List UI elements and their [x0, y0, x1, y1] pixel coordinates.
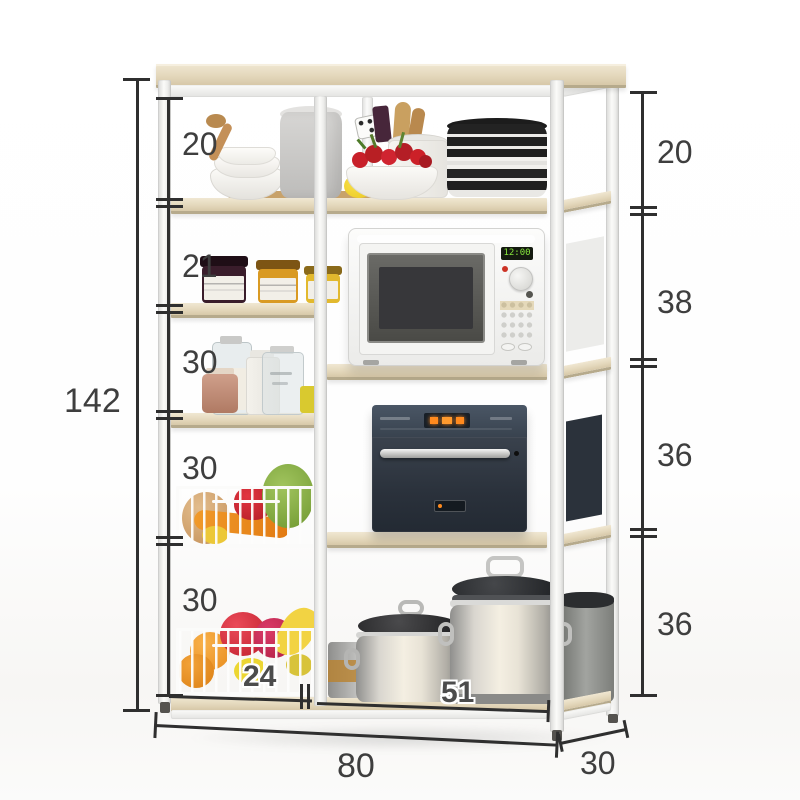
- glass-jar-doodle-mark: [272, 382, 288, 385]
- dim-line-right-segments: [641, 93, 644, 697]
- dim-tick: [630, 91, 657, 94]
- dim-label-left-segment: 20: [182, 128, 218, 160]
- dim-tick: [630, 694, 657, 697]
- medium-pot-handle-left: [344, 648, 360, 670]
- dim-label-depth: 30: [580, 747, 616, 779]
- dim-tick: [156, 97, 183, 100]
- dim-label-right-section-width: 51: [441, 676, 474, 710]
- jam-jar-amber-label: [260, 278, 296, 300]
- chili-heap: [352, 142, 432, 174]
- bowl-stack-top: [218, 147, 276, 165]
- oven-panel-marking: [380, 417, 410, 420]
- dim-separator: [630, 358, 657, 368]
- large-pot-lid-handle: [486, 556, 524, 578]
- dim-separator: [156, 410, 183, 420]
- oven: [372, 405, 527, 532]
- dim-tick: [123, 709, 150, 712]
- dim-separator: [156, 304, 183, 314]
- oven-panel-marking: [490, 417, 512, 420]
- shelf-right-2: [327, 364, 547, 380]
- dim-label-overall-height: 142: [64, 384, 121, 418]
- chili: [419, 155, 432, 168]
- dim-separator: [156, 198, 183, 208]
- oven-control-band: [372, 405, 527, 437]
- glass-canister-tall-clip: [220, 336, 242, 344]
- product-dimension-diagram: 12:00: [0, 0, 800, 800]
- oven-brand-dot: [438, 504, 442, 508]
- dim-label-left-segment: 30: [182, 346, 218, 378]
- grey-canister: [280, 112, 342, 198]
- shelf-1-full: [171, 198, 547, 214]
- rack-middle-post: [314, 96, 327, 706]
- oven-display-segment: [456, 417, 464, 424]
- glass-jar-doodle-mark: [270, 372, 292, 375]
- microwave-foot: [511, 360, 527, 365]
- dim-label-right-segment: 36: [657, 439, 693, 471]
- microwave-window-inner: [379, 267, 473, 329]
- microwave-display: 12:00: [501, 247, 533, 260]
- dim-label-right-segment: 38: [657, 286, 693, 318]
- dim-separator-vertical: [300, 684, 310, 709]
- dim-tick: [153, 712, 157, 738]
- shelf-left-3: [171, 413, 315, 428]
- dim-tick: [623, 720, 630, 738]
- oven-display-segment: [442, 417, 452, 424]
- oven-brand-badge: [434, 500, 466, 512]
- rack-front-right-leg: [550, 80, 564, 732]
- microwave-control-panel: 12:00: [499, 243, 535, 353]
- side-rail-shelf3: [563, 525, 611, 547]
- oven-side-panel: [566, 415, 602, 522]
- dim-label-right-segment: 20: [657, 136, 693, 168]
- microwave-top-trim: [357, 235, 535, 243]
- dim-separator: [630, 528, 657, 538]
- microwave-red-button: [502, 266, 508, 272]
- oven-panel-marking: [380, 428, 512, 430]
- dim-line-left-segments: [167, 99, 170, 697]
- microwave-foot: [363, 360, 379, 365]
- shelf-right-3: [327, 532, 547, 548]
- dim-tick: [123, 78, 150, 81]
- large-pot-handle-left: [438, 622, 454, 646]
- shelf-left-2: [171, 303, 315, 318]
- dark-spatula: [372, 105, 392, 142]
- vegetable-basket-scoop-rail: [212, 500, 280, 503]
- microwave-dial: [509, 267, 533, 291]
- microwave: 12:00: [348, 228, 545, 366]
- dim-label-left-segment: 30: [182, 584, 218, 616]
- oven-handle: [380, 449, 510, 458]
- microwave-side-panel: [566, 236, 604, 351]
- microwave-pill-button: [501, 343, 515, 351]
- dim-label-left-section-width: 24: [243, 660, 276, 694]
- vegetable-basket-wires: [176, 486, 316, 548]
- side-stock-pot: [558, 598, 614, 702]
- oven-display-segment: [430, 417, 438, 424]
- dim-label-right-segment: 36: [657, 608, 693, 640]
- dim-label-left-segment: 30: [182, 452, 218, 484]
- rack-front-left-foot: [160, 702, 170, 713]
- oven-lock-dot: [514, 451, 519, 456]
- microwave-dark-button: [526, 291, 533, 298]
- side-rail-shelf1: [563, 191, 611, 213]
- dim-label-left-segment: 21: [182, 250, 218, 282]
- side-stock-pot-lid: [558, 592, 614, 608]
- side-rail-shelf2: [563, 357, 611, 379]
- microwave-pill-button: [518, 343, 532, 351]
- bottom-front-beam: [171, 710, 547, 719]
- dim-separator: [630, 206, 657, 216]
- top-front-beam: [158, 85, 564, 97]
- dim-line-overall-height: [136, 80, 139, 712]
- plate-stack: [447, 124, 547, 197]
- rack-back-right-foot: [608, 714, 618, 723]
- dim-separator: [156, 536, 183, 546]
- microwave-button-grid-amber-row: [500, 301, 534, 310]
- oven-display: [424, 413, 470, 428]
- vegetable-basket: [176, 486, 316, 548]
- dim-label-overall-width: 80: [337, 749, 375, 783]
- fruit-basket-scoop-rail: [212, 644, 280, 647]
